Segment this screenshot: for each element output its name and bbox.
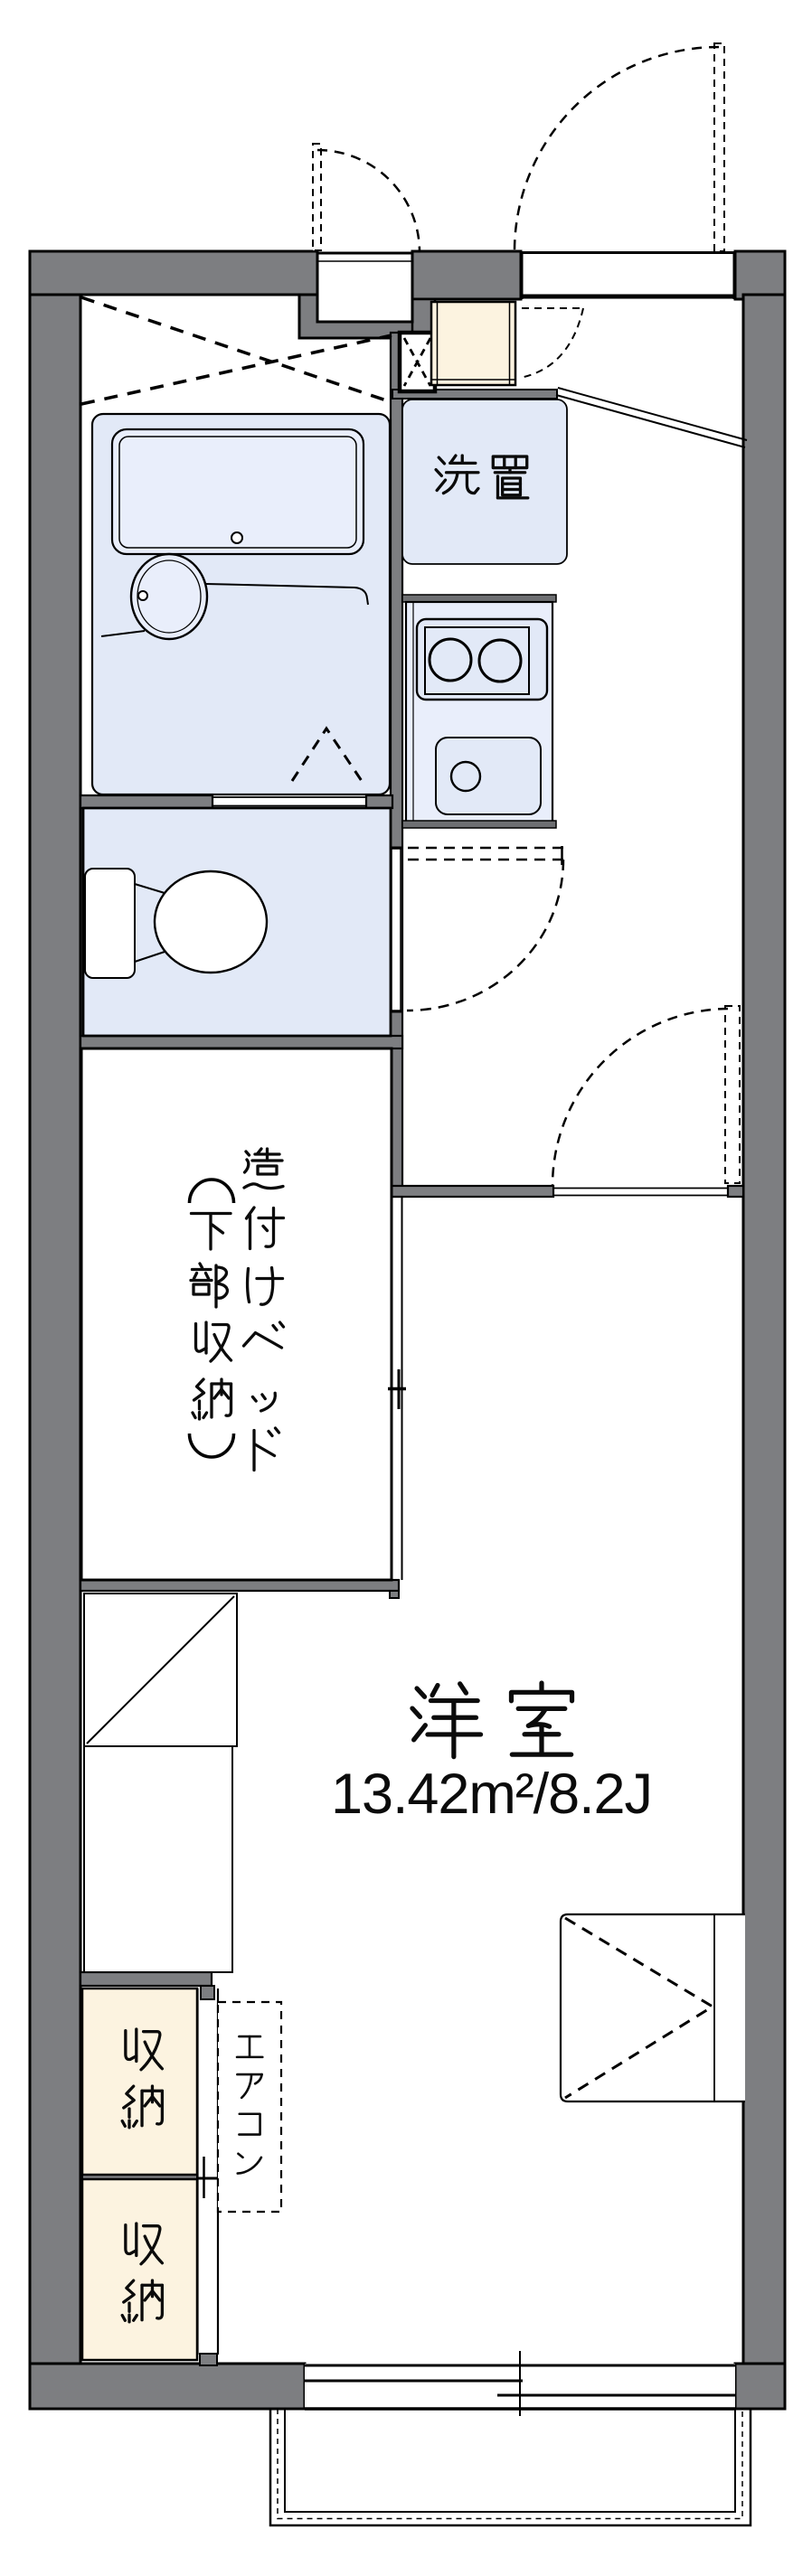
svg-text:13.42m²/8.2J: 13.42m²/8.2J	[331, 1763, 653, 1826]
